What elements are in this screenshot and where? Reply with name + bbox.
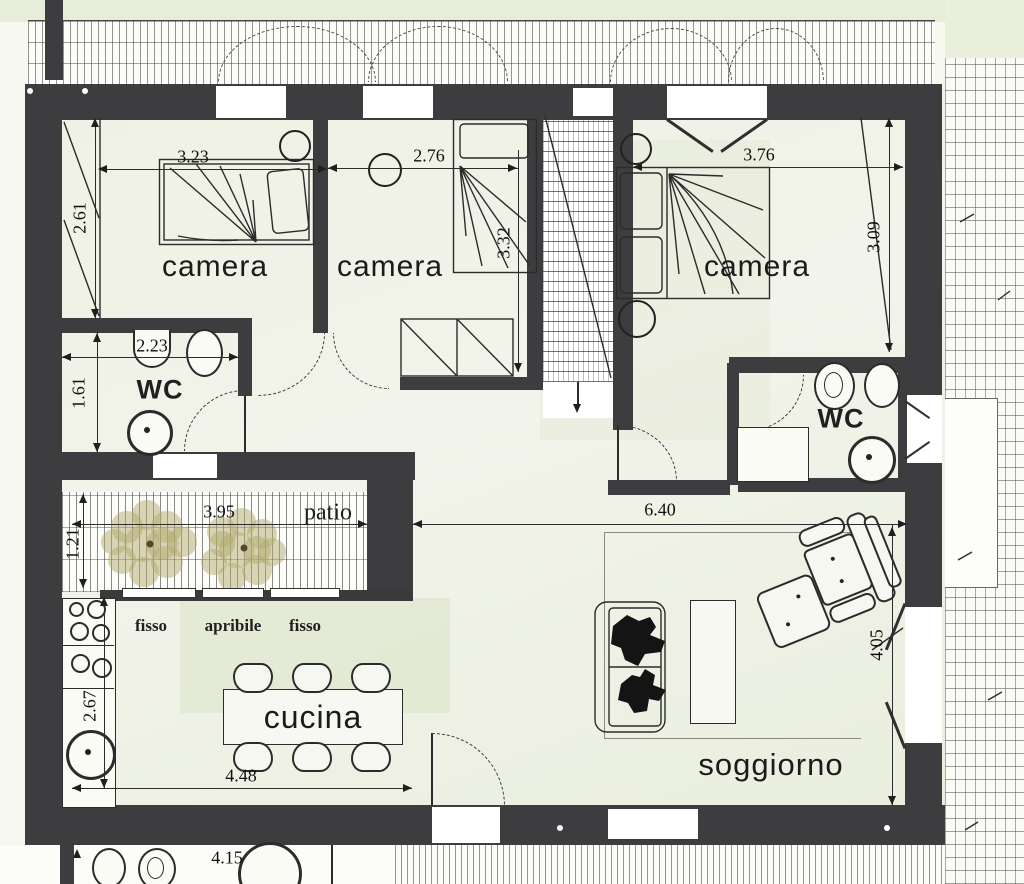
- lower-arrow-icon: [73, 849, 81, 858]
- arrow: [633, 163, 642, 171]
- room-label-patio: patio: [304, 500, 352, 527]
- room-label-wc-1: WC: [137, 375, 184, 406]
- chair-icon: [351, 663, 391, 693]
- dim-living-width: 6.40: [644, 500, 676, 521]
- arrow: [229, 353, 238, 361]
- arrow: [885, 343, 893, 352]
- dim-line-cucina-w: [72, 788, 412, 789]
- arrow: [888, 527, 896, 536]
- window-swing-arc-4: [728, 28, 824, 82]
- sink-bowl-icon: [92, 658, 112, 678]
- dim-camera3-height: 3.09: [864, 221, 885, 253]
- arrow: [514, 363, 522, 372]
- arrow: [358, 520, 367, 528]
- arrow: [403, 784, 412, 792]
- arrow: [62, 353, 71, 361]
- dim-line-camera3-h: [889, 118, 890, 352]
- dim-line-cucina-h: [104, 597, 105, 788]
- dim-wc1-width: 2.23: [136, 336, 168, 357]
- stool-icon-camera2: [368, 153, 402, 187]
- arrow: [72, 520, 81, 528]
- dim-line-camera2-h: [518, 150, 519, 372]
- sink-bowl-icon: [71, 654, 90, 673]
- arrow: [413, 520, 422, 528]
- dim-camera1-height: 2.61: [70, 202, 91, 234]
- arrow: [888, 796, 896, 805]
- room-label-camera-2: camera: [337, 250, 443, 284]
- room-label-camera-1: camera: [162, 250, 268, 284]
- window-label-apribile: apribile: [205, 616, 262, 636]
- dim-camera3-width: 3.76: [743, 145, 775, 166]
- dim-line-camera1-w: [100, 169, 328, 170]
- burner-icon: [69, 602, 84, 617]
- wardrobe-icon: [400, 318, 514, 377]
- room-label-camera-3: camera: [704, 250, 810, 284]
- arrow: [79, 494, 87, 503]
- arrow: [98, 165, 107, 173]
- arrow: [93, 333, 101, 342]
- arrow: [91, 118, 99, 127]
- dim-line-living-w: [413, 524, 907, 525]
- chair-icon: [351, 742, 391, 772]
- lower-bidet-icon: [92, 848, 126, 884]
- dim-line-camera3-w: [633, 167, 903, 168]
- room-label-wc-2: WC: [818, 404, 865, 435]
- dim-camera2-width: 2.76: [413, 146, 445, 167]
- arrow: [79, 579, 87, 588]
- dim-patio-depth: 1.21: [63, 528, 84, 560]
- arrow: [885, 118, 893, 127]
- chair-icon: [292, 663, 332, 693]
- counter-divider-2: [62, 688, 114, 689]
- dim-camera1-width: 3.23: [177, 147, 209, 168]
- chair-icon: [292, 742, 332, 772]
- arrow: [93, 443, 101, 452]
- arrow: [328, 164, 337, 172]
- dim-line-camera1-h: [95, 118, 96, 318]
- dim-cucina-height: 2.67: [80, 690, 101, 722]
- shower-icon-wc2: [848, 436, 896, 484]
- stool-icon-camera3-bottom: [618, 300, 656, 338]
- dim-patio-width: 3.95: [203, 502, 235, 523]
- dim-line-wc1-h: [97, 333, 98, 452]
- arrow: [318, 165, 327, 173]
- bidet-icon-wc1: [186, 329, 223, 377]
- burner-icon: [92, 624, 110, 642]
- dim-line-living-h: [892, 524, 893, 805]
- lower-toilet-inner: [147, 857, 164, 879]
- dim-lower-width: 4.15: [211, 848, 243, 869]
- counter-divider-1: [62, 645, 114, 646]
- stool-icon-camera1: [279, 130, 311, 162]
- burner-icon: [70, 622, 89, 641]
- room-label-soggiorno: soggiorno: [698, 747, 843, 783]
- arrow: [898, 520, 907, 528]
- sofa-icon: [593, 600, 667, 734]
- window-swing-arc-1: [218, 26, 376, 82]
- arrow: [894, 163, 903, 171]
- window-label-fisso-1: fisso: [135, 616, 167, 636]
- shower-tray-wc2: [737, 427, 809, 482]
- arrow: [91, 309, 99, 318]
- coffee-table: [690, 600, 736, 724]
- room-label-cucina: cucina: [264, 699, 363, 736]
- washer-center: [85, 749, 91, 755]
- shower-drain-wc1: [144, 427, 150, 433]
- chair-icon: [233, 663, 273, 693]
- arrow: [72, 784, 81, 792]
- arrow: [100, 597, 108, 606]
- stool-icon-camera3-top: [620, 133, 652, 165]
- dim-cucina-width: 4.48: [225, 766, 257, 787]
- dim-camera2-height: 3.32: [494, 227, 515, 259]
- washer-icon: [66, 730, 116, 780]
- bed-icon-camera1: [158, 158, 316, 246]
- shower-drain-wc2: [866, 454, 872, 460]
- window-swing-arc-2: [368, 26, 508, 82]
- dim-wc1-height: 1.61: [69, 377, 90, 409]
- window-swing-arc-3: [610, 28, 732, 82]
- dim-living-height: 4.05: [867, 629, 888, 661]
- dining-table: cucina: [223, 689, 403, 745]
- dim-line-camera2-w: [328, 168, 518, 169]
- arrow: [508, 164, 517, 172]
- window-label-fisso-2: fisso: [289, 616, 321, 636]
- bidet-icon-wc2: [864, 363, 900, 408]
- shower-icon-wc1: [127, 410, 173, 456]
- toilet-inner-wc2: [824, 372, 843, 398]
- dim-line-wc1-w: [62, 357, 238, 358]
- arrow: [100, 779, 108, 788]
- floor-plan: cucina: [0, 0, 1024, 884]
